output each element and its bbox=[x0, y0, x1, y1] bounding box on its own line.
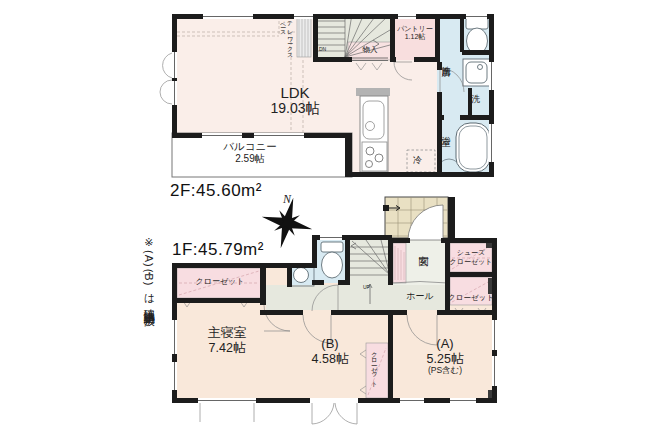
entrance-label: 玄関 bbox=[418, 248, 429, 250]
room-a-label: (A) bbox=[405, 337, 485, 352]
closet-b-label: クローゼット bbox=[371, 347, 378, 384]
room-a-size: 5.25帖 bbox=[405, 352, 485, 366]
floor1-plan bbox=[172, 197, 497, 424]
balcony-label: バルコニー bbox=[195, 141, 305, 153]
shoe-closet-label: シューズ クローゼット bbox=[448, 248, 494, 266]
kitchen-counter bbox=[356, 88, 390, 172]
master-closet-label: クローゼット bbox=[180, 278, 260, 287]
storage-label: 物入 bbox=[352, 46, 388, 54]
washer-label: 洗 bbox=[471, 94, 480, 104]
side-note: ※(A)・(B)は確認申請上納戸扱い bbox=[143, 236, 155, 426]
entrance-porch bbox=[383, 197, 448, 240]
toilet-2f-icon bbox=[466, 18, 488, 54]
casement-window-arcs bbox=[160, 53, 172, 104]
pantry-size-label: 1.12帖 bbox=[392, 33, 438, 41]
room-a-note: (PS含む) bbox=[405, 366, 485, 376]
kitchen-sink-icon bbox=[363, 101, 384, 139]
balcony-size-label: 2.59帖 bbox=[195, 153, 305, 164]
room-b-size: 4.58帖 bbox=[295, 352, 365, 366]
compass-north-label: N bbox=[283, 193, 291, 206]
washroom-label: 洗面所 bbox=[441, 59, 451, 62]
stairs-dn-label: DN bbox=[319, 47, 326, 53]
floor2-area-title: 2F:45.60m² bbox=[170, 181, 262, 200]
fridge-label: 冷 bbox=[413, 155, 422, 165]
stove-icon bbox=[362, 142, 387, 171]
floor1-area-title: 1F:45.79m² bbox=[172, 240, 264, 259]
vanity-sink-icon bbox=[463, 59, 490, 86]
ldk-size-label: 19.03帖 bbox=[245, 101, 345, 117]
pantry-label: パントリー bbox=[392, 25, 438, 33]
telework-space-label: テレワークスペース bbox=[279, 17, 293, 59]
closet-a-label: クローゼット bbox=[448, 294, 494, 302]
terrace-door-arcs bbox=[200, 403, 357, 424]
floor-plan-page: テレワークスペース LDK 19.03帖 バルコニー 2.59帖 物入 パントリ… bbox=[0, 0, 650, 430]
toilet-1f-icon bbox=[321, 242, 343, 278]
hall-label: ホール bbox=[395, 291, 445, 301]
room-b-label: (B) bbox=[295, 337, 365, 352]
master-bedroom-size: 7.42帖 bbox=[177, 341, 277, 355]
master-bedroom-label: 主寝室 bbox=[177, 326, 277, 341]
stairs-up-label: UP bbox=[363, 285, 370, 291]
bathroom-label: 浴室 bbox=[441, 129, 451, 131]
